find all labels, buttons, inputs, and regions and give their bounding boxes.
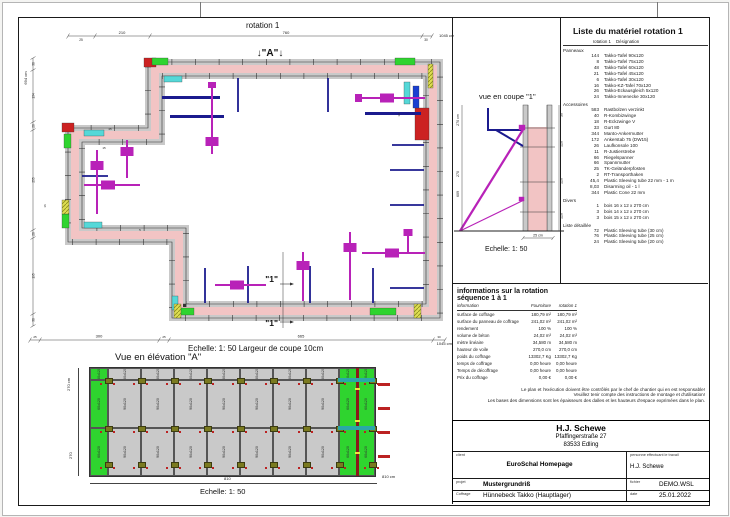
elevation-panel: 90x120 [108, 380, 141, 428]
formwork-value: Hünnebeck Takko (Hauptlager) [483, 492, 571, 499]
col-qty: rotation 1 [563, 39, 611, 44]
svg-text:694 cm: 694 cm [23, 71, 28, 85]
tie-dot [377, 467, 379, 469]
anchor-marker [138, 378, 146, 384]
client-label: client [456, 453, 465, 457]
info-table-row: Temps de décoffrage0,00 heure0,00 heure [457, 367, 577, 374]
anchor-marker [336, 462, 344, 468]
tie-dot [100, 431, 102, 433]
tie-dot [331, 383, 333, 385]
tie-dot [265, 467, 267, 469]
elevation-grid: 30x12030x12030x12030x12030x12030x12030x1… [90, 368, 375, 476]
project-value: Mustergrundriß [483, 481, 530, 488]
tie-dot [100, 467, 102, 469]
tie-dot [311, 467, 313, 469]
section-caption: Echelle: 1: 50 [485, 246, 528, 253]
material-item: 3bois 15 x 12 x 270 cm [563, 215, 708, 221]
tie-dot [298, 383, 300, 385]
svg-text:30: 30 [32, 62, 36, 66]
elevation-panel: 90x120 [240, 380, 273, 428]
tie-dot [113, 467, 115, 469]
tie-dot [278, 431, 280, 433]
elevation-caption: Echelle: 1: 50 [200, 487, 245, 496]
file-label: fichier [630, 480, 640, 484]
corner-post [356, 368, 359, 476]
svg-text:665: 665 [298, 334, 305, 339]
svg-text:134: 134 [32, 93, 36, 99]
info-table-row: hauteur de voile270,0 cm270,0 cm [457, 346, 577, 353]
svg-text:255: 255 [32, 177, 36, 183]
col-designation: Désignation [616, 39, 639, 44]
info-table-header: informationFourniturerotation 1 [457, 302, 577, 311]
svg-text:1045 cm: 1045 cm [437, 341, 453, 346]
material-item: 24Takko-Innenecke 30x120 [563, 94, 708, 100]
tie-dot [298, 467, 300, 469]
material-list-body: Panneaux144Takko-Tafel 90x1208Takko-Tafe… [563, 48, 708, 245]
elevation-dim-left-total: 270 cm [66, 378, 71, 391]
wedge-clip [355, 452, 360, 454]
tie-dot [298, 431, 300, 433]
anchor-marker [204, 426, 212, 432]
svg-text:20: 20 [32, 124, 36, 128]
tie-dot [232, 431, 234, 433]
tie-rod [378, 407, 390, 410]
project-label: projet [456, 480, 466, 484]
anchor-marker [237, 378, 245, 384]
svg-text:25: 25 [79, 38, 83, 42]
fold-mark [200, 2, 201, 17]
tie-dot [364, 431, 366, 433]
tie-dot [311, 383, 313, 385]
tie-dot [265, 383, 267, 385]
info-table-body: informationFourniturerotation 1surface d… [457, 302, 577, 381]
section-marker-1: "1" [265, 274, 278, 284]
tie-dot [166, 383, 168, 385]
anchor-marker [105, 462, 113, 468]
svg-text:30: 30 [424, 38, 428, 42]
tie-dot [199, 383, 201, 385]
anchor-marker [105, 378, 113, 384]
tie-rod [378, 431, 390, 434]
anchor-marker [138, 426, 146, 432]
anchor-marker [204, 462, 212, 468]
material-item: 24Plastic Sleeving tube (20 cm) [563, 239, 708, 245]
svg-text:25: 25 [33, 335, 37, 339]
tie-dot [166, 467, 168, 469]
worker-label: personne effectuant le travail [630, 453, 679, 457]
tie-dot [278, 467, 280, 469]
tie-dot [232, 467, 234, 469]
formwork-label: Coffrage [456, 492, 471, 496]
svg-text:270: 270 [456, 171, 460, 177]
info-table-row: surface du panneau de coffrage241,02 m²2… [457, 318, 577, 325]
tie-rod [378, 455, 390, 458]
tie-dot [364, 467, 366, 469]
anchor-marker [270, 426, 278, 432]
tie-dot [278, 383, 280, 385]
section-marker-1b: "1" [265, 318, 278, 328]
elevation-dim-bottom: 810 [224, 476, 231, 481]
walkway-bracket [488, 108, 523, 146]
elevation-dim-line-left [78, 368, 79, 476]
info-table-row: poids du coffrage13302,7 Kg13302,7 Kg [457, 353, 577, 360]
elevation-panel: 90x120 [207, 380, 240, 428]
tie-dot [133, 383, 135, 385]
svg-text:45: 45 [108, 127, 112, 131]
elevation-panel: 90x120 [273, 380, 306, 428]
disclaimer: Le plan et l'exécution doivent être cont… [452, 387, 705, 403]
section-marker-a: ↓"A"↓ [257, 48, 284, 59]
aligning-rail [338, 426, 375, 430]
svg-text:25: 25 [162, 335, 166, 339]
anchor-marker [369, 462, 377, 468]
tie-dot [199, 467, 201, 469]
svg-text:30: 30 [437, 335, 441, 339]
elevation-dim-left: 270 [68, 452, 73, 459]
anchor-marker [270, 378, 278, 384]
wedge-clip [355, 420, 360, 422]
anchor-marker [171, 426, 179, 432]
tie-dot [146, 467, 148, 469]
tie-dot [212, 467, 214, 469]
material-list: Liste du matériel rotation 1 rotation 1 … [563, 26, 708, 245]
info-table-row: mètre linéaire34,580 m34,580 m [457, 339, 577, 346]
svg-text:210: 210 [119, 30, 126, 35]
tie-dot [179, 467, 181, 469]
elevation-dim-bottom-total: 810 cm [382, 474, 395, 479]
info-table-row: surface de coffrage180,79 m²180,79 m² [457, 311, 577, 318]
anchor-marker [171, 378, 179, 384]
tie-dot [311, 431, 313, 433]
info-table-title: informations sur la rotation séquence 1 … [457, 288, 577, 302]
plan-caption: Echelle: 1: 50 Largeur de coupe 10cm [188, 344, 324, 353]
tie-dot [212, 431, 214, 433]
tie-dot [344, 431, 346, 433]
tie-dot [232, 383, 234, 385]
material-list-title: Liste du matériel rotation 1 [573, 26, 708, 36]
svg-text:270 cm: 270 cm [456, 114, 460, 126]
svg-text:195: 195 [32, 273, 36, 279]
tie-dot [166, 431, 168, 433]
elevation-panel: 60x120 [90, 428, 108, 476]
section-title: vue en coupe "1" [479, 92, 536, 101]
fold-mark [657, 2, 658, 17]
client-value: EuroSchal Homepage [453, 461, 626, 468]
svg-text:609: 609 [456, 191, 460, 197]
elevation-dim-line-bottom [90, 483, 377, 484]
info-table-row: Prix du coffrage0,00 €0,00 € [457, 374, 577, 381]
svg-text:20: 20 [32, 232, 36, 236]
elevation-panel: 90x120 [306, 380, 339, 428]
info-table-row: temps de coffrage0,00 heure0,00 heure [457, 360, 577, 367]
tie-dot [113, 383, 115, 385]
svg-text:14: 14 [397, 113, 401, 117]
plan-view: rotation 1 [18, 16, 454, 358]
anchor-marker [303, 378, 311, 384]
anchor-marker [303, 462, 311, 468]
tie-dot [331, 431, 333, 433]
svg-text:16: 16 [43, 204, 47, 208]
tie-dot [133, 431, 135, 433]
wedge-clip [355, 388, 360, 390]
svg-text:760: 760 [283, 30, 290, 35]
tie-dot [245, 431, 247, 433]
section-braces [460, 125, 525, 231]
date-label: date [630, 492, 637, 496]
material-item: 344Plastic Cone 22 mm [563, 190, 708, 196]
worker-value: H.J. Schewe [630, 464, 664, 470]
tie-dot [179, 431, 181, 433]
elevation-panel: 90x120 [174, 380, 207, 428]
elevation-panel: 60x120 [90, 380, 108, 428]
svg-text:30: 30 [32, 318, 36, 322]
drawing-sheet: rotation 1 [0, 0, 730, 517]
frame-divider-horizontal [452, 283, 708, 284]
svg-text:15: 15 [102, 146, 106, 150]
tie-dot [146, 431, 148, 433]
title-block: H.J. Schewe Pfaffingerstraße 27 83533 Ed… [452, 420, 710, 502]
file-value: DEMO.WSL [659, 481, 694, 488]
tie-dot [113, 431, 115, 433]
tie-dot [245, 467, 247, 469]
tie-dot [212, 383, 214, 385]
company-address2: 83533 Edling [453, 442, 709, 448]
tie-dot [265, 431, 267, 433]
aligning-rail [338, 378, 375, 382]
date-value: 25.01.2022 [659, 492, 691, 499]
anchor-marker [105, 426, 113, 432]
anchor-marker [237, 462, 245, 468]
anchor-marker [303, 426, 311, 432]
tie-dot [344, 467, 346, 469]
tie-dot [146, 383, 148, 385]
info-table-row: rendement100 %100 % [457, 325, 577, 332]
tie-dot [133, 467, 135, 469]
tie-dot [199, 431, 201, 433]
svg-text:300: 300 [96, 334, 103, 339]
company-address1: Pfaffingerstraße 27 [453, 434, 709, 440]
info-table: informations sur la rotation séquence 1 … [457, 288, 577, 381]
tie-rod [378, 383, 390, 386]
tie-dot [364, 383, 366, 385]
section-view: vue en coupe "1" 270 cm 270 [452, 88, 572, 256]
anchor-marker [138, 462, 146, 468]
svg-text:25 cm: 25 cm [533, 234, 543, 238]
svg-text:1045 cm: 1045 cm [439, 33, 454, 38]
anchor-marker [270, 462, 278, 468]
elevation-panel: 90x120 [141, 380, 174, 428]
tie-dot [245, 383, 247, 385]
elevation-view: 30x12030x12030x12030x12030x12030x12030x1… [60, 355, 420, 507]
tie-dot [100, 383, 102, 385]
tie-dot [179, 383, 181, 385]
company-name: H.J. Schewe [453, 423, 709, 433]
disclaimer-line: Les bases des dimensions sont les épaiss… [452, 398, 705, 403]
tie-dot [331, 467, 333, 469]
anchor-marker [237, 426, 245, 432]
material-list-header: rotation 1 Désignation [563, 39, 708, 46]
tie-dot [344, 383, 346, 385]
info-table-row: volume de béton24,02 m³24,02 m³ [457, 332, 577, 339]
plan-title: rotation 1 [246, 21, 280, 30]
anchor-marker [171, 462, 179, 468]
anchor-marker [204, 378, 212, 384]
